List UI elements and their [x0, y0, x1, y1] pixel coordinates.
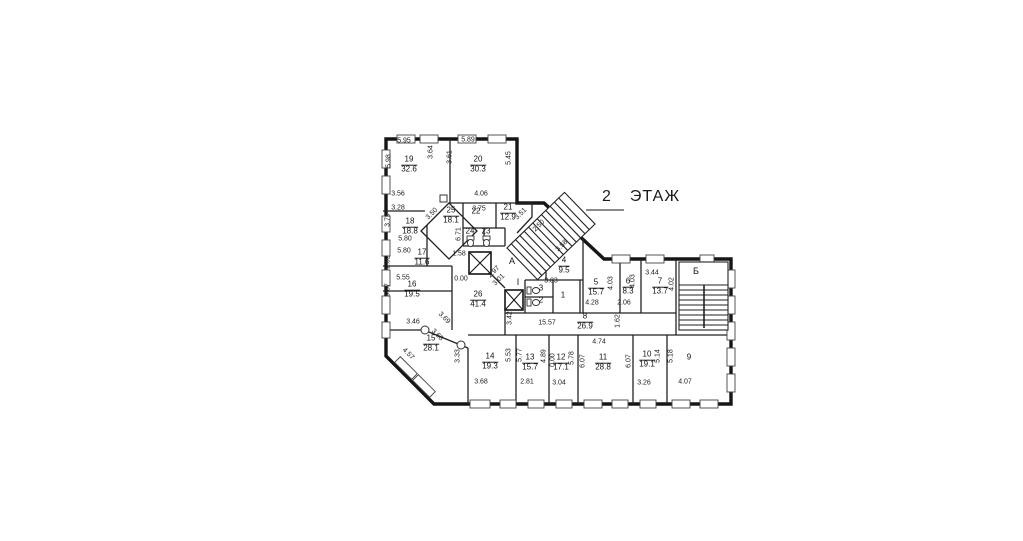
dimension-label: 4.89	[541, 349, 548, 363]
dimension-label: 3.28	[391, 205, 405, 212]
room-label-19: 1932.6	[401, 156, 417, 175]
dimension-label: 2.81	[520, 379, 534, 386]
room-label-24: 24	[466, 228, 475, 237]
room-label-3: 3	[539, 285, 543, 294]
dimension-label: 4.06	[474, 191, 488, 198]
room-label-18: 1818.8	[402, 218, 418, 237]
dimension-label: 5.14	[655, 349, 662, 363]
dimension-label: 5.89	[461, 137, 475, 144]
dimension-label: 6.07	[626, 354, 633, 368]
room-label-20: 2030.3	[470, 156, 486, 175]
floorplan-page: 2 ЭТАЖ 1932.6 2030.3 2518.1 22 2112.9 24…	[0, 0, 1023, 541]
dimension-label: 3.68	[474, 379, 488, 386]
room-label-23: 23	[482, 228, 491, 237]
dimension-label: 5.95	[397, 138, 411, 145]
dimension-label: 5.55	[396, 275, 410, 282]
room-label-9: 9	[687, 354, 691, 363]
dimension-label: 3.83	[544, 278, 558, 285]
room-label-7: 713.7	[652, 278, 668, 297]
dimension-label: 3.61	[447, 150, 454, 164]
dimension-label: 6.07	[580, 354, 587, 368]
floor-title: 2 ЭТАЖ	[586, 188, 680, 211]
dimension-label: 0.00	[454, 276, 468, 283]
dimension-label: 3.44	[645, 270, 659, 277]
floor-word: ЭТАЖ	[630, 188, 680, 206]
dimension-label: 2.02	[385, 255, 392, 269]
dimension-label: 3.56	[391, 191, 405, 198]
dimension-label: 3.67	[385, 283, 392, 297]
dimension-label: 0.00	[550, 353, 557, 367]
room-label-26: 2641.4	[470, 291, 486, 310]
room-label-11: 1128.8	[595, 354, 611, 373]
staircase-b-icon	[679, 262, 728, 330]
dimension-label: 4.03	[608, 276, 615, 290]
dimension-label: 15.57	[538, 320, 556, 327]
dimension-label: 2.06	[617, 300, 631, 307]
zone-label-b: Б	[693, 267, 699, 277]
dimension-label: 4.74	[592, 339, 606, 346]
dimension-label: 3.75	[472, 206, 486, 213]
room-label-14: 1419.3	[482, 353, 498, 372]
room-label-5: 515.7	[588, 279, 604, 298]
dimension-label: 4.03	[630, 274, 637, 288]
dimension-label: 3.46	[406, 319, 420, 326]
room-label-17: 1711.6	[415, 249, 430, 268]
room-label-2: 2	[539, 297, 543, 306]
zone-label-i: I	[517, 278, 520, 288]
dimension-label: 5.80	[397, 248, 411, 255]
dimension-label: 3.79	[385, 213, 392, 227]
dimension-label: 1.58	[452, 251, 466, 258]
room-label-4: 49.5	[558, 257, 569, 276]
dimension-label: 1.62	[615, 314, 622, 328]
staircase-top-icon	[507, 192, 595, 279]
room-label-25: 2518.1	[443, 207, 459, 226]
dimension-label: 5.45	[506, 151, 513, 165]
room-label-8: 826.9	[577, 313, 593, 332]
room-label-21: 2112.9	[500, 204, 516, 223]
room-label-1: 1	[561, 292, 565, 301]
dimension-label: 6.71	[456, 227, 463, 241]
dimension-label: 4.02	[669, 277, 676, 291]
dimension-label: 3.42	[507, 311, 514, 325]
dimension-label: 5.78	[569, 351, 576, 365]
room-label-13: 1315.7	[522, 354, 538, 373]
room-label-10: 1019.1	[639, 351, 655, 370]
dimension-label: 5.80	[398, 236, 412, 243]
dimension-label: 3.33	[455, 349, 462, 363]
dimension-label: 5.98	[386, 154, 393, 168]
dimension-label: 5.77	[517, 348, 524, 362]
dimension-label: 3.26	[637, 380, 651, 387]
floorplan-drawing	[0, 0, 1023, 541]
floor-number: 2	[586, 188, 624, 211]
dimension-label: 4.28	[585, 300, 599, 307]
room-label-16: 1619.5	[404, 281, 420, 300]
dimension-label: 4.07	[678, 379, 692, 386]
zone-label-a: A	[509, 257, 515, 267]
dimension-label: 3.64	[428, 145, 435, 159]
dimension-label: 5.53	[506, 348, 513, 362]
dimension-label: 3.04	[552, 380, 566, 387]
shaft-square	[440, 195, 447, 202]
dimension-label: 5.18	[668, 349, 675, 363]
